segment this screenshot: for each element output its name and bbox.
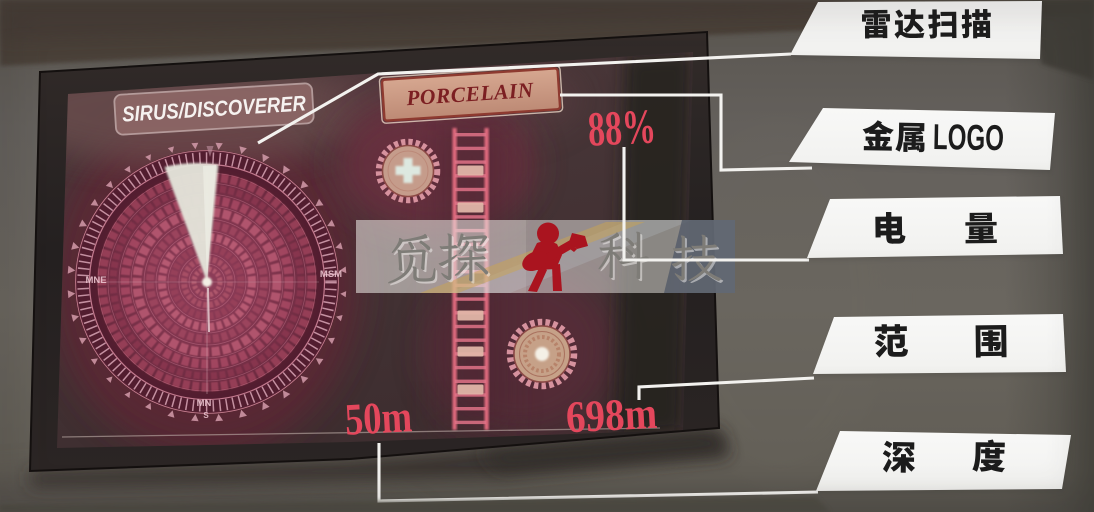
svg-text:MSM: MSM xyxy=(320,269,342,280)
svg-text:88%: 88% xyxy=(586,98,657,156)
svg-text:LOGO: LOGO xyxy=(933,116,1005,158)
svg-text:MNE: MNE xyxy=(85,275,106,286)
svg-text:50m: 50m xyxy=(344,391,414,444)
svg-text:MN: MN xyxy=(197,398,212,409)
svg-text:S: S xyxy=(203,411,209,420)
